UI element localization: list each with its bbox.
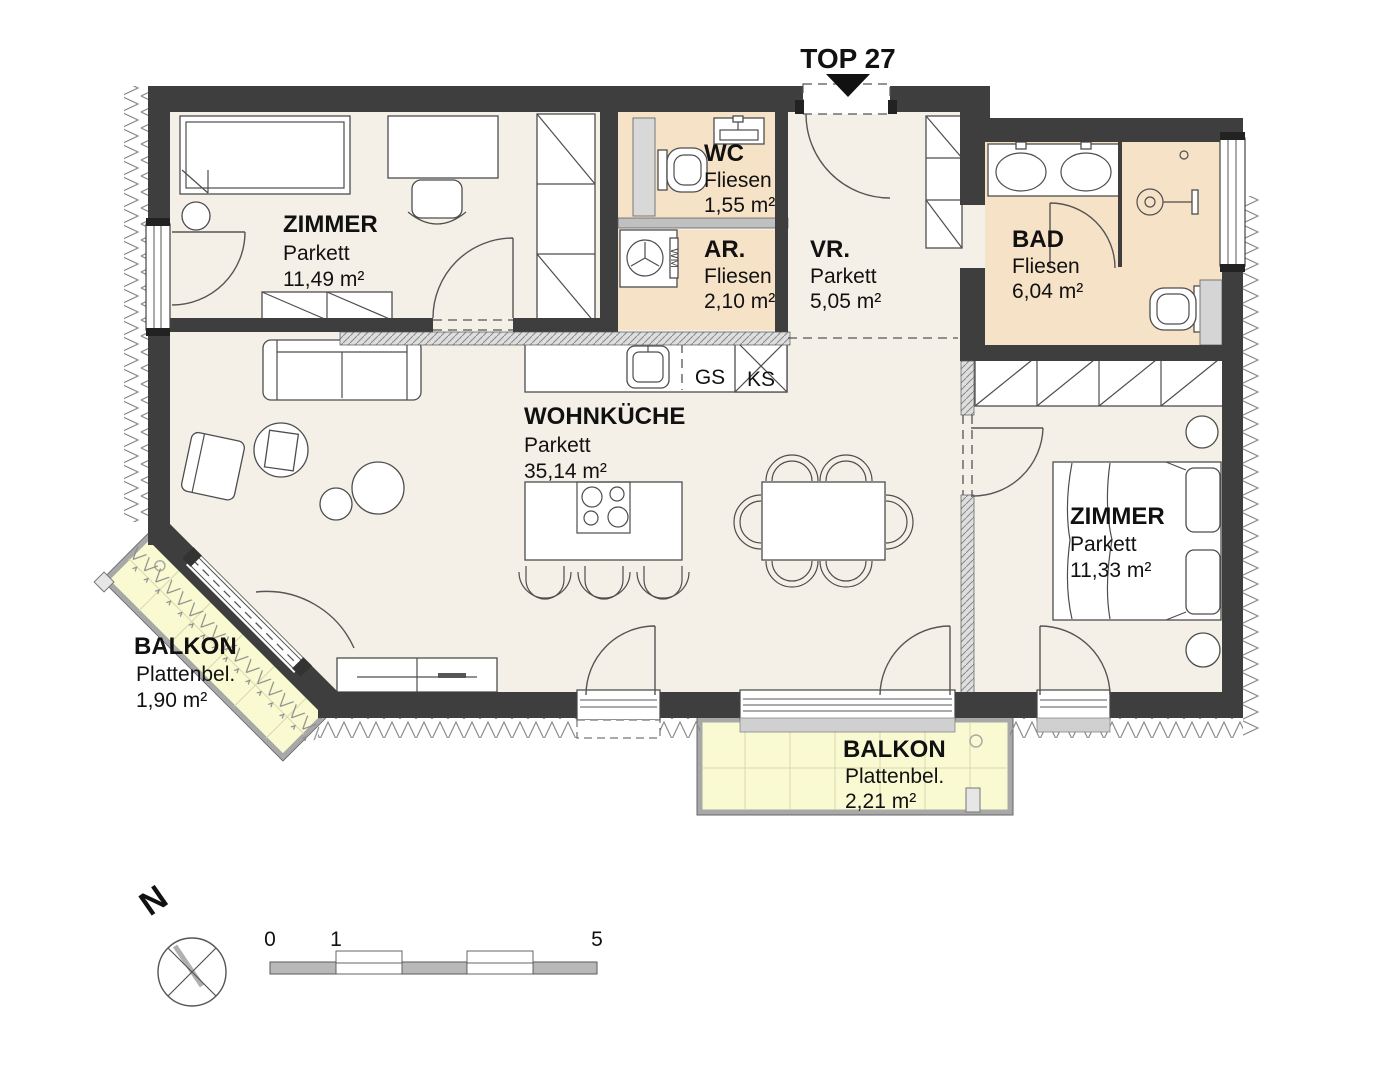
pillow xyxy=(1186,468,1220,532)
label-vr-name: VR. xyxy=(810,236,850,263)
label-bad-area: 6,04 m² xyxy=(1012,280,1083,303)
plant xyxy=(1186,633,1220,667)
label-ar-area: 2,10 m² xyxy=(704,290,775,313)
label-balkon2-floor: Plattenbel. xyxy=(845,765,944,788)
label-wc-name: WC xyxy=(704,140,744,167)
label-ar-floor: Fliesen xyxy=(704,265,772,288)
label-wc-floor: Fliesen xyxy=(704,169,772,192)
wardrobe xyxy=(975,356,1223,406)
plant xyxy=(352,462,404,514)
plant xyxy=(182,202,210,230)
label-bad-name: BAD xyxy=(1012,226,1064,253)
unit-title: TOP 27 xyxy=(800,43,895,74)
label-wohnkueche-area: 35,14 m² xyxy=(524,460,607,483)
hatch-left xyxy=(124,86,148,522)
label-zimmer2-area: 11,33 m² xyxy=(1070,559,1151,582)
label-balkon1-area: 1,90 m² xyxy=(136,689,207,712)
floorplan-canvas: TOP 27 ZIMMER Parkett 11,49 m² WC Fliese… xyxy=(0,0,1384,1080)
window-bottom-main xyxy=(740,690,955,732)
label-zimmer1-floor: Parkett xyxy=(283,242,350,265)
label-balkon2-name: BALKON xyxy=(843,736,946,763)
sofa xyxy=(263,340,421,400)
label-vr-area: 5,05 m² xyxy=(810,290,881,313)
scale-tick-1: 1 xyxy=(330,928,342,951)
label-dishwasher: GS xyxy=(695,366,725,389)
label-wc-area: 1,55 m² xyxy=(704,194,775,217)
label-zimmer1-area: 11,49 m² xyxy=(283,268,364,291)
toilet-tank xyxy=(658,150,667,190)
label-balkon1-floor: Plattenbel. xyxy=(136,663,235,686)
window-shower xyxy=(1220,132,1245,272)
window-door-bottom-left xyxy=(577,690,660,738)
north-label: N xyxy=(133,878,175,923)
label-balkon1-name: BALKON xyxy=(134,633,237,660)
armchair xyxy=(180,431,245,501)
dining-table xyxy=(762,482,885,560)
plant xyxy=(1186,416,1218,448)
label-washer: WM xyxy=(668,248,680,268)
wardrobe xyxy=(537,114,595,323)
label-wohnkueche-floor: Parkett xyxy=(524,434,591,457)
scale-bar: 0 1 5 xyxy=(264,928,603,974)
scale-tick-5: 5 xyxy=(591,928,603,951)
window-bedroom-left xyxy=(146,218,170,336)
label-zimmer2-name: ZIMMER xyxy=(1070,503,1165,530)
label-ar-name: AR. xyxy=(704,236,745,263)
label-fridge: KS xyxy=(747,368,775,391)
desk-chair xyxy=(412,180,462,218)
plant xyxy=(320,488,352,520)
desk xyxy=(388,116,498,178)
compass-icon: N xyxy=(133,878,226,1006)
label-bad-floor: Fliesen xyxy=(1012,255,1080,278)
hatch-right xyxy=(1243,196,1259,736)
pillow xyxy=(1186,550,1220,614)
floorplan-page: TOP 27 ZIMMER Parkett 11,49 m² WC Fliese… xyxy=(0,0,1384,1080)
label-balkon2-area: 2,21 m² xyxy=(845,790,916,813)
kitchen-island xyxy=(525,482,682,560)
window-bottom-right xyxy=(1037,690,1110,732)
vr-wardrobe xyxy=(926,116,962,248)
label-zimmer1-name: ZIMMER xyxy=(283,211,378,238)
scale-tick-0: 0 xyxy=(264,928,276,951)
label-wohnkueche-name: WOHNKÜCHE xyxy=(524,403,685,430)
label-vr-floor: Parkett xyxy=(810,265,877,288)
label-zimmer2-floor: Parkett xyxy=(1070,533,1137,556)
sideboard xyxy=(337,658,497,692)
dresser xyxy=(262,292,392,320)
